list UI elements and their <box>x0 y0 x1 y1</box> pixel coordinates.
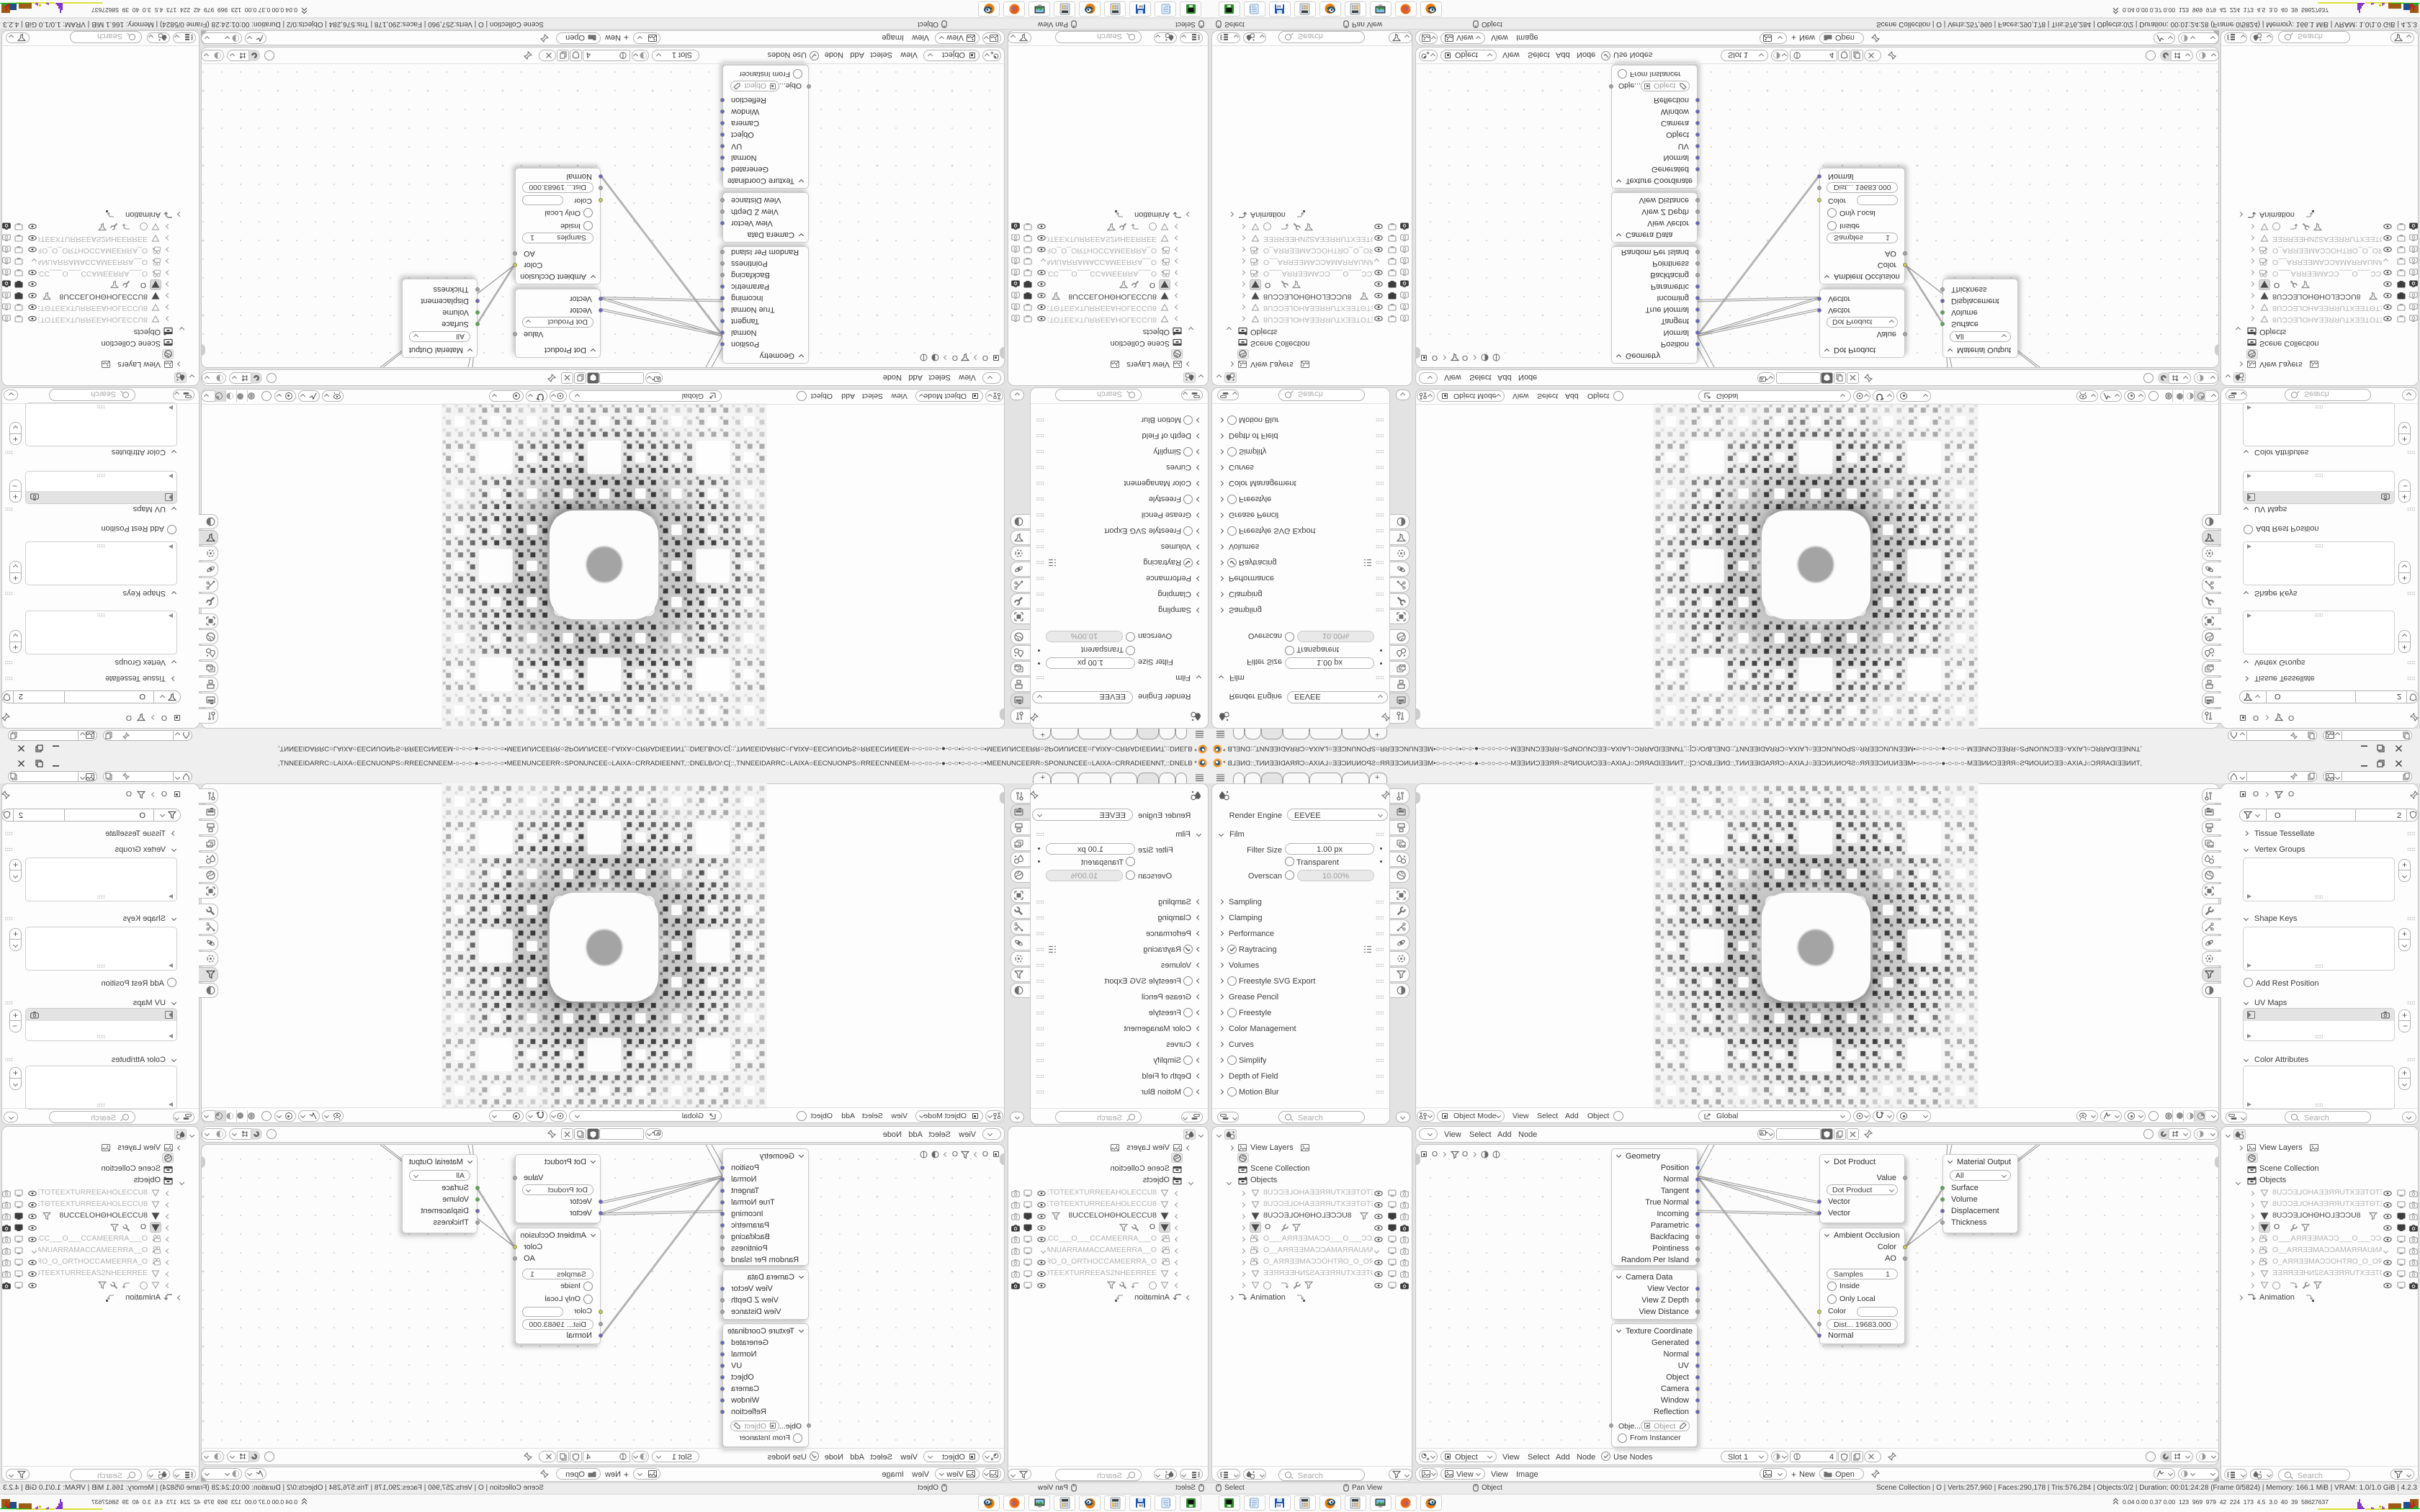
svg-text:64: 64 <box>1139 1504 1143 1508</box>
svg-text:64: 64 <box>1277 1504 1281 1508</box>
svg-text:64: 64 <box>1139 4 1143 8</box>
svg-text:64: 64 <box>1277 4 1281 8</box>
